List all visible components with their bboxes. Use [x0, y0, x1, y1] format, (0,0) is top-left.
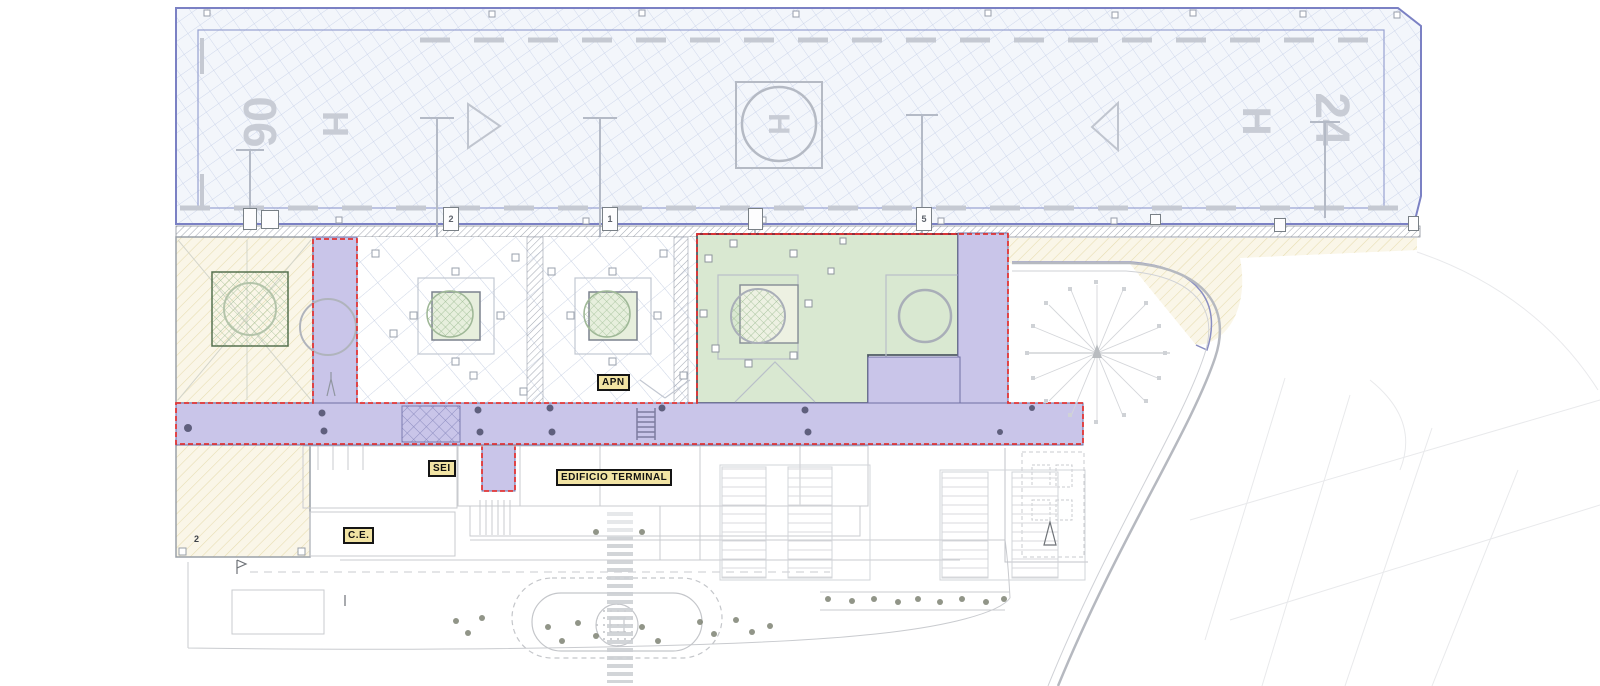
runway-marker-box — [261, 210, 279, 229]
runway-marker-box — [1408, 216, 1419, 231]
label-fire-station: SEI — [428, 460, 456, 477]
runway-marker-box — [1274, 218, 1286, 232]
runway-marker-box — [1150, 214, 1161, 225]
helipad-h: H — [762, 113, 795, 135]
crosshatch-patch — [402, 406, 460, 442]
label-apron: APN — [597, 374, 630, 391]
site-plan-canvas[interactable]: 06 H H 24 H — [0, 0, 1600, 686]
taxiway-strip-vertical — [313, 237, 357, 403]
apron-pad-1 — [427, 291, 480, 340]
site-plan-drawing: 06 H H 24 H — [0, 0, 1600, 686]
runway-letter-h-left: H — [315, 111, 356, 137]
parking-lots — [720, 465, 1085, 580]
beige-area-upper-left — [176, 237, 313, 403]
sunburst-marker — [1025, 280, 1170, 424]
purple-stub — [482, 445, 515, 491]
runway-marker-box: 2 — [443, 207, 459, 231]
runway-marker-box: 5 — [916, 207, 932, 231]
purple-notch — [868, 357, 960, 405]
apron-pad-2 — [584, 291, 637, 340]
area-number: 2 — [194, 534, 199, 544]
beige-band-right — [990, 238, 1417, 350]
crosswalk — [607, 510, 633, 683]
runway-marker-box — [243, 208, 257, 230]
purple-band-right — [958, 233, 1008, 405]
apron-area — [357, 237, 697, 403]
taxiway-strip-horizontal — [176, 403, 1083, 445]
runway-marker-box: 1 — [602, 207, 618, 231]
runway-letter-h-right: H — [1234, 107, 1278, 136]
runway-marker-box — [748, 208, 763, 230]
city-blocks — [1190, 252, 1600, 686]
runway-designator-06: 06 — [234, 96, 286, 147]
label-terminal: EDIFICIO TERMINAL — [556, 469, 672, 486]
runway-designator-24: 24 — [1305, 92, 1358, 146]
label-ce: C.E. — [343, 527, 374, 544]
